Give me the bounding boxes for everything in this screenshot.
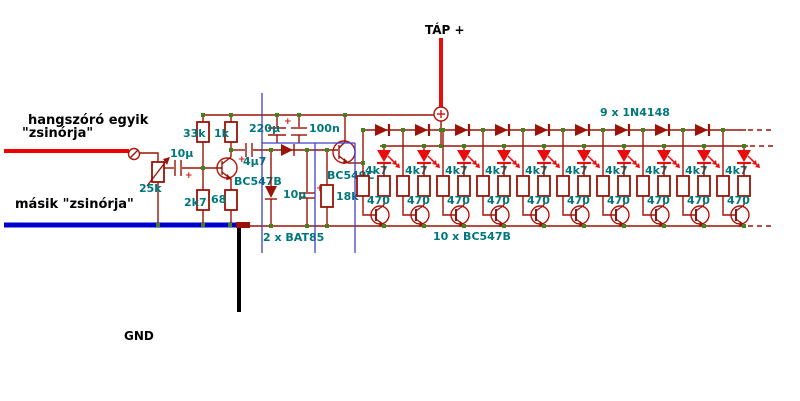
stage-base-resistor [717, 176, 729, 196]
bat85-series-diode [281, 144, 293, 156]
junction-dot [622, 144, 626, 148]
stage-led-resistor-label: 470 [727, 194, 750, 207]
junction-dot [502, 144, 506, 148]
junction-dot [229, 148, 233, 152]
stage-base-resistor [437, 176, 449, 196]
r68-body [225, 190, 237, 210]
stage-led-resistor [618, 176, 630, 196]
pot-label: 25k [139, 182, 162, 195]
junction-dot [275, 113, 279, 117]
series-diode [535, 124, 548, 136]
junction-dot [156, 223, 160, 227]
stage-base-resistor [397, 176, 409, 196]
series-diode [575, 124, 588, 136]
junction-dot [401, 128, 405, 132]
transistor-array-note: 10 x BC547B [433, 230, 511, 243]
junction-dot [361, 128, 365, 132]
stage-led-resistor-label: 470 [527, 194, 550, 207]
stage-led-resistor [738, 176, 750, 196]
led-stage: 4k7470 [357, 130, 400, 227]
stage-led-resistor-label: 470 [607, 194, 630, 207]
r18k-label: 18k [336, 190, 359, 203]
junction-dot [297, 113, 301, 117]
c10u2-label: 10µ [283, 188, 306, 201]
series-diode [455, 124, 468, 136]
stage-led-resistor [458, 176, 470, 196]
r68-label: 68 [211, 193, 226, 206]
stage-led-resistor-label: 470 [367, 194, 390, 207]
stage-led-resistor-label: 470 [447, 194, 470, 207]
series-diode [415, 124, 428, 136]
stage-led-resistor [658, 176, 670, 196]
junction-dot [382, 144, 386, 148]
input-cap-plus: + [185, 171, 193, 181]
led-stage: 4k7470 [717, 130, 760, 227]
junction-dot [702, 144, 706, 148]
junction-dot [582, 144, 586, 148]
junction-dot [662, 144, 666, 148]
junction-dot [521, 128, 525, 132]
stage-led-resistor [698, 176, 710, 196]
junction-dot [681, 128, 685, 132]
junction-dot [721, 128, 725, 132]
junction-dot [228, 223, 232, 227]
led-stage: 4k7470 [597, 130, 640, 227]
junction-dot [439, 144, 443, 148]
junction-dot [361, 161, 365, 165]
stage-base-resistor [597, 176, 609, 196]
junction-dot [662, 224, 666, 228]
junction-dot [601, 128, 605, 132]
r1k-label: 1k [214, 127, 230, 140]
c4u7-plus: + [238, 155, 246, 165]
stage-led-resistor [578, 176, 590, 196]
stage-base-resistor [557, 176, 569, 196]
junction-dot [622, 224, 626, 228]
junction-dot [702, 224, 706, 228]
junction-dot [742, 144, 746, 148]
junction-dot [439, 128, 443, 132]
gnd-label: GND [124, 329, 154, 343]
stage-led-resistor-label: 470 [567, 194, 590, 207]
stage-led-resistor-label: 470 [687, 194, 710, 207]
stage-led-resistor-label: 470 [487, 194, 510, 207]
junction-dot [422, 144, 426, 148]
junction-dot [269, 148, 273, 152]
c100n-label: 100n [309, 122, 340, 135]
junction-dot [325, 148, 329, 152]
junction-dot [201, 166, 205, 170]
junction-dot [201, 113, 205, 117]
diode-chain [375, 124, 709, 136]
pot-top-wire [139, 153, 158, 162]
junction-dot [641, 128, 645, 132]
input-terminal-tick [130, 150, 138, 158]
junction-dot [201, 223, 205, 227]
stage-led-resistor-label: 470 [647, 194, 670, 207]
led-stage: 4k7470 [437, 130, 480, 227]
stage-led-resistor [418, 176, 430, 196]
junction-dot [582, 224, 586, 228]
junction-dot [343, 113, 347, 117]
junction-dot [462, 144, 466, 148]
junction-dot [481, 128, 485, 132]
stage-base-resistor [357, 176, 369, 196]
stage-base-resistor [677, 176, 689, 196]
stage-led-resistor-label: 470 [407, 194, 430, 207]
junction-dot [542, 144, 546, 148]
c220-label: 220µ [249, 122, 280, 135]
junction-dot [325, 224, 329, 228]
junction-dot [229, 113, 233, 117]
series-diode [375, 124, 388, 136]
led-stage: 4k7470 [637, 130, 680, 227]
junction-dot [422, 224, 426, 228]
c220-plus: + [284, 117, 292, 127]
bat85-shunt-diode [265, 186, 277, 198]
stage-led-resistor [378, 176, 390, 196]
stage-base-resistor [477, 176, 489, 196]
series-diode [695, 124, 708, 136]
junction-dot [305, 148, 309, 152]
stage-base-resistor [517, 176, 529, 196]
c4u7-label: 4µ7 [243, 155, 266, 168]
led-stage: 4k7470 [397, 130, 440, 227]
series-diode [615, 124, 628, 136]
gnd-bar [236, 222, 250, 228]
schematic-canvas: hangszóró egyik "zsinórja" másik "zsinór… [0, 0, 800, 401]
series-diode [495, 124, 508, 136]
junction-dot [462, 224, 466, 228]
schematic-page: hangszóró egyik "zsinórja" másik "zsinór… [0, 0, 800, 401]
led-stage: 4k7470 [677, 130, 720, 227]
r18k-body [321, 185, 333, 207]
led-stage: 4k7470 [557, 130, 600, 227]
stage-base-resistor [637, 176, 649, 196]
junction-dot [382, 224, 386, 228]
other-lead-label: másik "zsinórja" [15, 197, 134, 212]
stage-led-resistor [498, 176, 510, 196]
led-stage: 4k7470 [517, 130, 560, 227]
junction-dot [502, 224, 506, 228]
diode-chain-note: 9 x 1N4148 [600, 106, 670, 119]
junction-dot [269, 224, 273, 228]
junction-dot [742, 224, 746, 228]
stage-led-resistor [538, 176, 550, 196]
speaker-label-line2: "zsinórja" [22, 126, 93, 141]
junction-dot [542, 224, 546, 228]
led-stage: 4k7470 [477, 130, 520, 227]
junction-dot [561, 128, 565, 132]
led-stages: 4k74704k74704k74704k74704k74704k74704k74… [357, 130, 760, 227]
series-diode [655, 124, 668, 136]
junction-dot [305, 224, 309, 228]
input-cap-label: 10µ [170, 147, 193, 160]
supply-label: TÁP + [425, 22, 465, 37]
r2k7-label: 2k7 [184, 196, 207, 209]
r33k-label: 33k [183, 127, 206, 140]
